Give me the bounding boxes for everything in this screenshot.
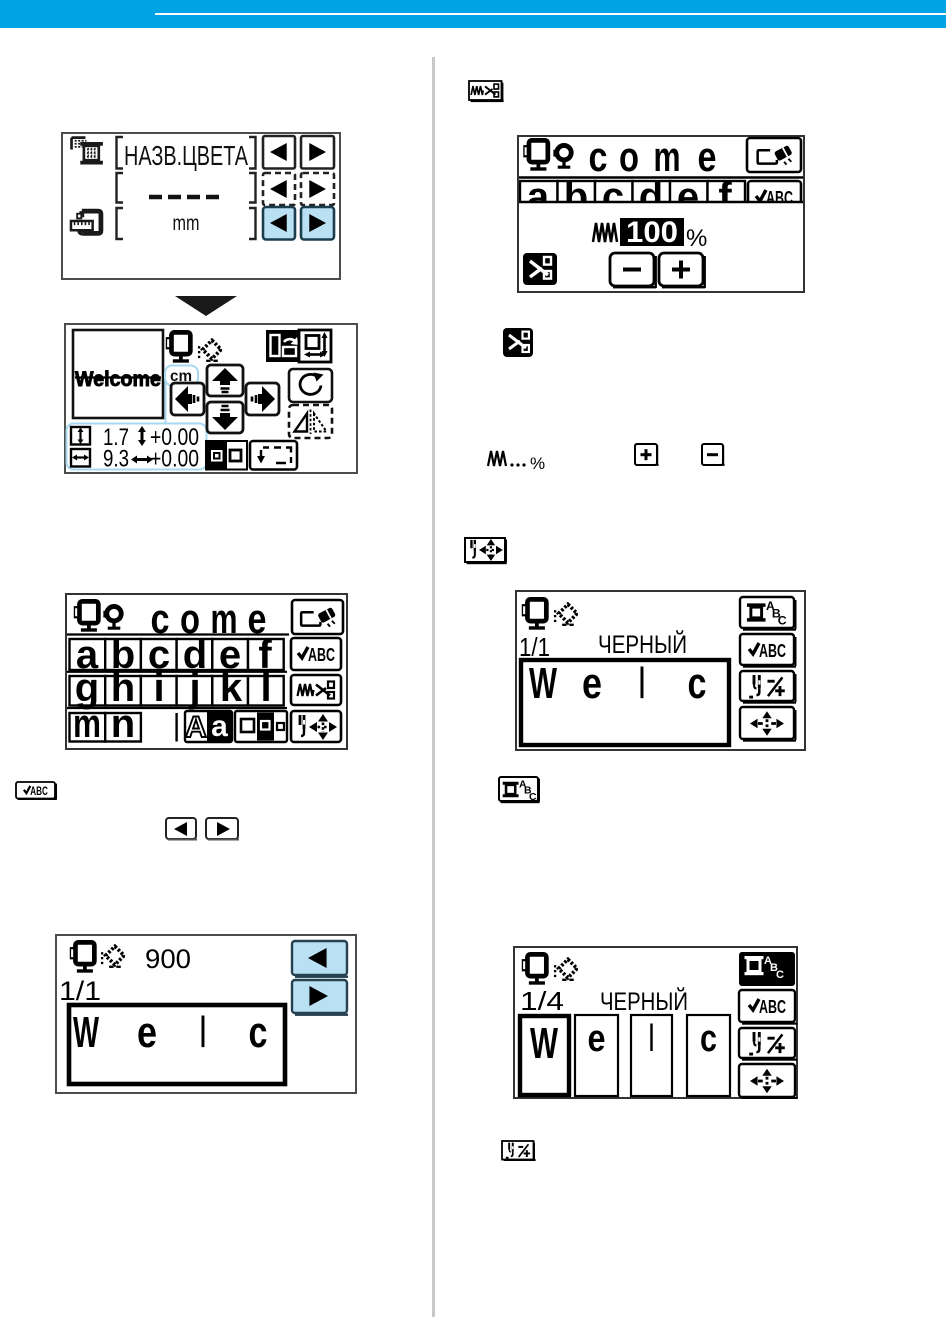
- svg-text:c: c: [589, 135, 608, 180]
- svg-text:i: i: [153, 666, 164, 710]
- svg-text:%: %: [686, 225, 707, 252]
- svg-text:+0.00: +0.00: [150, 446, 199, 473]
- svg-text:C: C: [776, 969, 784, 981]
- svg-text:l: l: [649, 1018, 654, 1060]
- svg-text:c: c: [700, 1018, 717, 1060]
- svg-text:e: e: [137, 1008, 157, 1057]
- svg-text:n: n: [111, 702, 135, 746]
- svg-text:e: e: [588, 1018, 606, 1060]
- svg-text:W: W: [529, 659, 557, 708]
- svg-text:k: k: [220, 666, 243, 710]
- svg-text:900: 900: [145, 944, 191, 974]
- svg-text:m: m: [73, 702, 101, 746]
- svg-text:Welcome: Welcome: [75, 368, 161, 391]
- svg-text:e: e: [698, 135, 717, 180]
- svg-text:ЧЕРНЫЙ: ЧЕРНЫЙ: [600, 986, 688, 1016]
- svg-text:НАЗВ.ЦВЕТА: НАЗВ.ЦВЕТА: [124, 140, 248, 171]
- svg-text:o: o: [619, 135, 639, 180]
- svg-text:W: W: [530, 1019, 558, 1068]
- svg-text:A: A: [185, 711, 207, 744]
- svg-text:l: l: [260, 666, 271, 710]
- svg-text:c: c: [688, 659, 707, 708]
- svg-text:W: W: [73, 1008, 99, 1057]
- svg-text:a: a: [211, 710, 228, 743]
- svg-text:m: m: [654, 135, 681, 180]
- svg-text:mm: mm: [173, 212, 200, 235]
- svg-text:1/1: 1/1: [59, 976, 101, 1006]
- svg-text:l: l: [639, 659, 645, 708]
- svg-text:ЧЕРНЫЙ: ЧЕРНЫЙ: [598, 629, 687, 659]
- svg-text:c: c: [249, 1008, 268, 1057]
- svg-text:j: j: [188, 666, 200, 710]
- svg-text:100: 100: [626, 216, 678, 249]
- svg-text:e: e: [582, 659, 602, 708]
- svg-text:l: l: [200, 1008, 206, 1057]
- svg-text:9.3: 9.3: [103, 446, 129, 473]
- svg-text:1/1: 1/1: [519, 632, 550, 662]
- svg-text:%: %: [530, 454, 545, 471]
- svg-text:1/4: 1/4: [520, 986, 564, 1016]
